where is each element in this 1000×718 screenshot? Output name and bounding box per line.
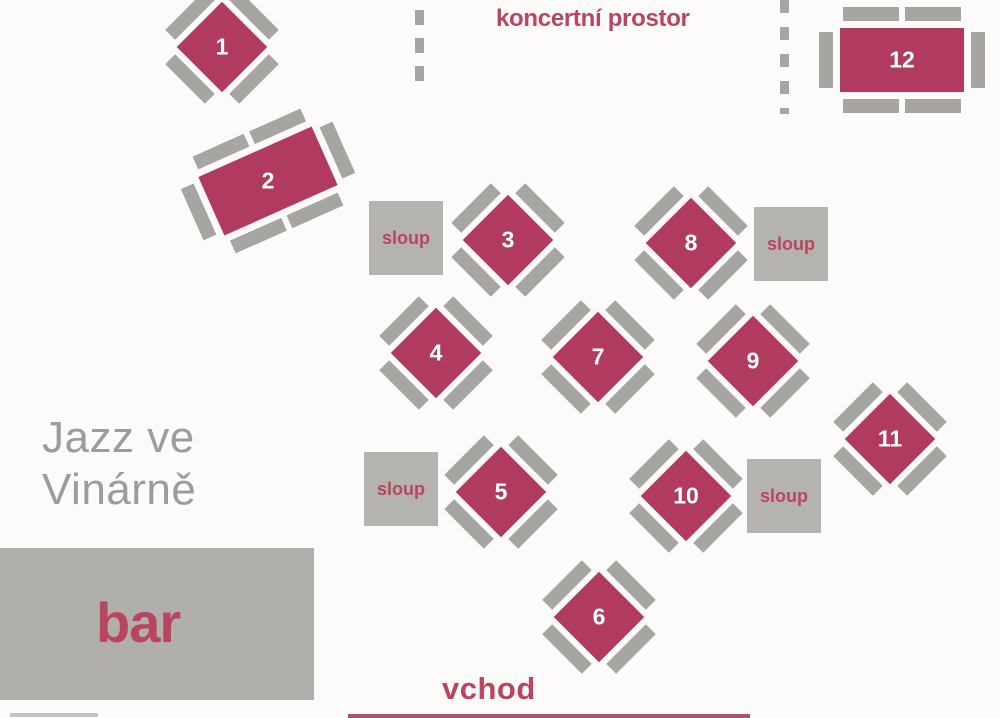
- table-number: 2: [262, 168, 275, 195]
- table-number: 5: [495, 479, 508, 506]
- table-number: 9: [747, 348, 760, 375]
- entrance-label: vchod: [442, 671, 536, 707]
- pillar-label: sloup: [382, 228, 430, 249]
- table-number: 6: [593, 604, 606, 631]
- pillar-label: sloup: [760, 486, 808, 507]
- table-number: 8: [685, 230, 698, 257]
- bar-label: bar: [96, 590, 180, 655]
- bar-area: bar: [0, 548, 314, 700]
- pillar-sloup: sloup: [747, 459, 821, 533]
- table-number: 7: [592, 344, 605, 371]
- table-number: 1: [216, 34, 229, 61]
- table-number: 12: [889, 47, 915, 74]
- chair-icon: [819, 32, 833, 88]
- chair-icon: [971, 32, 985, 88]
- bottom-left-cutoff-shape: [10, 713, 98, 717]
- floor-plan: koncertní prostor Jazz ve Vinárně bar vc…: [0, 0, 1000, 718]
- chair-icon: [843, 7, 899, 21]
- table-number: 11: [878, 426, 902, 453]
- pillar-label: sloup: [377, 479, 425, 500]
- pillar-label: sloup: [767, 234, 815, 255]
- table-number: 4: [430, 340, 443, 367]
- pillar-sloup: sloup: [364, 452, 438, 526]
- stage-boundary-dash-right: [780, 0, 789, 114]
- table-number: 3: [502, 227, 515, 254]
- stage-boundary-dash-left: [415, 10, 424, 88]
- entrance-cutoff-strip: [348, 714, 750, 718]
- table-number: 10: [673, 483, 699, 510]
- venue-title: Jazz ve Vinárně: [42, 412, 196, 516]
- chair-icon: [905, 7, 961, 21]
- venue-title-line1: Jazz ve: [42, 412, 196, 464]
- concert-area-label: koncertní prostor: [496, 5, 690, 33]
- pillar-sloup: sloup: [754, 207, 828, 281]
- chair-icon: [905, 99, 961, 113]
- pillar-sloup: sloup: [369, 201, 443, 275]
- venue-title-line2: Vinárně: [42, 464, 196, 516]
- chair-icon: [843, 99, 899, 113]
